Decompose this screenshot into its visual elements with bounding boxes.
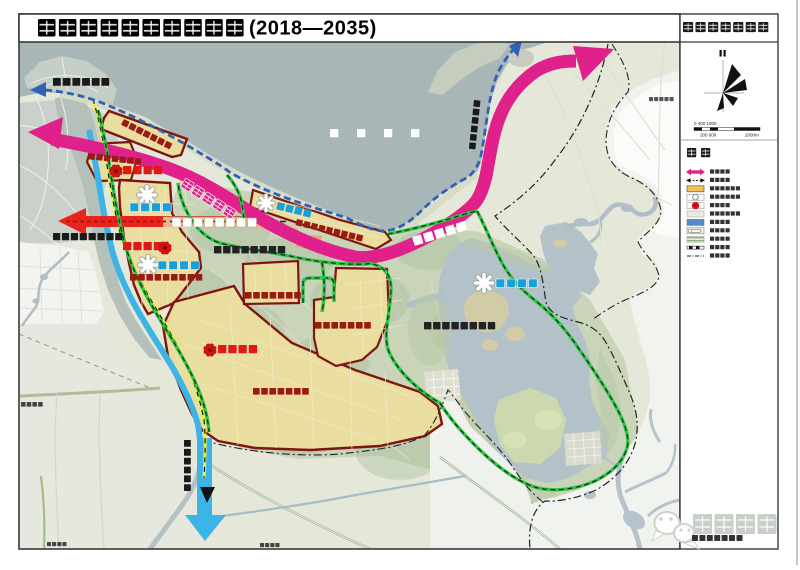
- svg-text:2000m: 2000m: [745, 133, 759, 138]
- svg-text:200 600: 200 600: [700, 133, 717, 138]
- svg-text:(2018—2035): (2018—2035): [249, 18, 377, 40]
- svg-text:0 400 1000: 0 400 1000: [694, 121, 717, 126]
